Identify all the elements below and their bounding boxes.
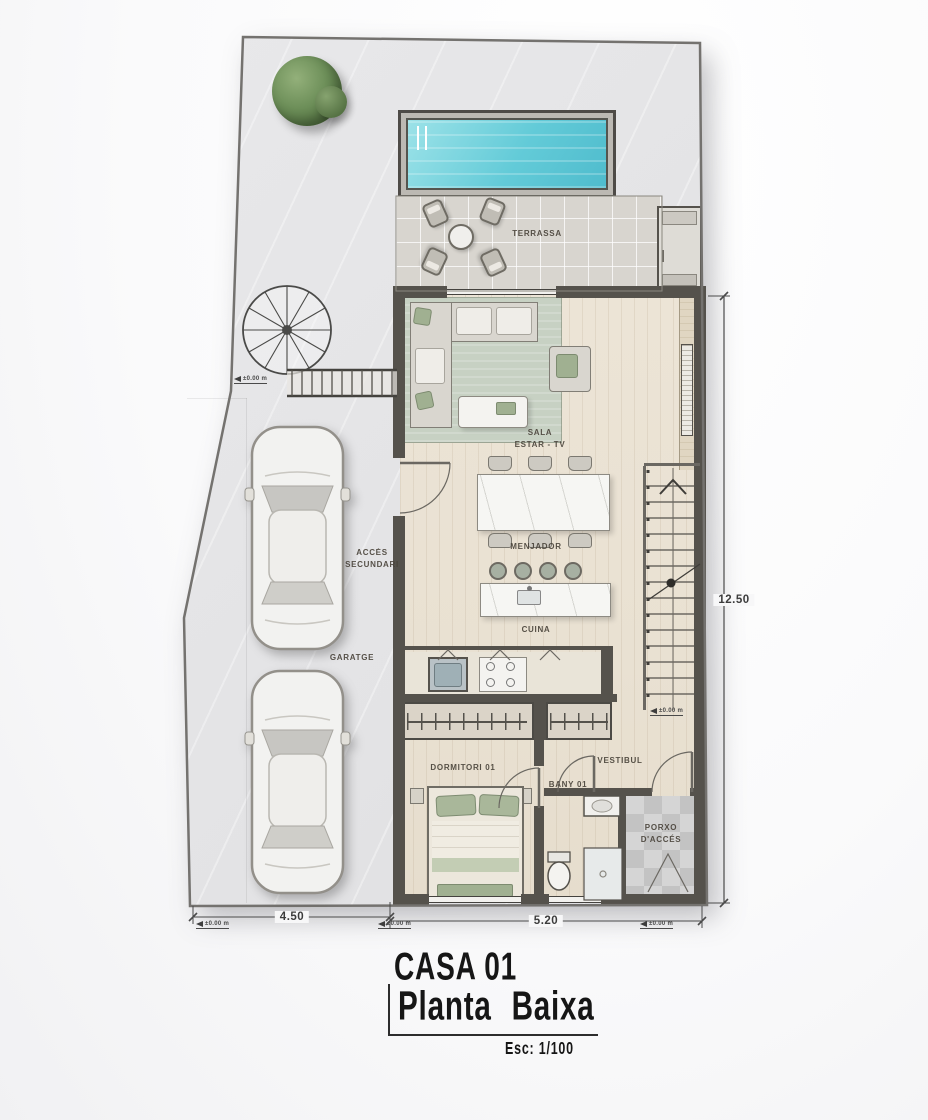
pool-water (406, 118, 608, 190)
armchair-pillow (556, 354, 578, 378)
dining-table (477, 474, 610, 531)
right-wall-shelf (681, 344, 693, 436)
title-project: CASA 01 (394, 944, 517, 989)
paving-joint (187, 398, 247, 399)
burner (506, 678, 515, 687)
sink-basin (434, 663, 462, 687)
bar-stool (564, 562, 582, 580)
room-label-porch: PORXOD'ACCÉS (641, 822, 682, 847)
coffee-table-book (496, 402, 516, 415)
cabinet-top (662, 211, 697, 225)
level-marker: ±0.00 m (650, 708, 683, 716)
counter-backline (393, 646, 613, 650)
cabinet-handle (662, 250, 664, 262)
sliding-glass-door (447, 289, 557, 295)
wall-segment (601, 894, 706, 906)
room-label-terrace: TERRASSA (512, 228, 562, 240)
dimension-bottom-left: 4.50 (275, 911, 309, 923)
stair-landing-edge (644, 463, 700, 466)
room-label-kitchen: CUINA (522, 624, 551, 636)
bar-stool (539, 562, 557, 580)
room-label-dining: MENJADOR (510, 541, 561, 553)
sofa-cushion (456, 307, 492, 335)
dimension-right: 12.50 (713, 594, 754, 606)
wall-segment (601, 646, 613, 702)
wall-segment (618, 788, 652, 796)
dining-chair (528, 456, 552, 471)
coffee-table (458, 396, 528, 428)
bar-stool (514, 562, 532, 580)
wall-segment (534, 702, 546, 740)
bed-pillow (435, 794, 476, 817)
level-arrow-icon (196, 921, 203, 927)
level-marker: ±0.00 m (378, 921, 411, 929)
wardrobe (400, 702, 534, 740)
wall-segment (393, 286, 405, 458)
bed (427, 786, 524, 898)
title-scale: Esc: 1/100 (505, 1040, 574, 1059)
room-label-hall: VESTIBUL (597, 755, 642, 767)
floor-plan: TERRASSA SALAESTAR - TV MENJADOR CUINA A… (0, 0, 928, 1120)
room-label-bathroom: BANY 01 (549, 779, 588, 791)
burner (486, 662, 495, 671)
sofa-pillow (413, 307, 432, 326)
kitchen-island (480, 583, 611, 617)
burner (486, 678, 495, 687)
wall-segment (534, 740, 544, 766)
wall-segment (694, 286, 706, 906)
room-label-garage: GARATGE (330, 652, 374, 664)
dining-chair (568, 533, 592, 548)
burner (506, 662, 515, 671)
window (549, 896, 601, 903)
title-rule-horizontal (388, 1034, 598, 1036)
level-arrow-icon (650, 708, 657, 714)
sofa-cushion (415, 348, 445, 384)
wall-segment (393, 694, 617, 702)
title-rule-vertical (388, 984, 390, 1036)
sofa-pillow (414, 390, 434, 410)
level-marker: ±0.00 m (640, 921, 673, 929)
room-label-bedroom: DORMITORI 01 (430, 762, 495, 774)
wall-segment (393, 894, 429, 906)
wall-segment (690, 788, 706, 796)
window (429, 896, 521, 903)
dining-chair (488, 456, 512, 471)
paving-joint (246, 398, 247, 903)
nightstand (410, 788, 424, 804)
wall-segment (534, 806, 544, 906)
room-label-living: SALAESTAR - TV (515, 427, 566, 452)
island-sink (517, 590, 541, 605)
dimension-bottom-right: 5.20 (529, 915, 563, 927)
level-arrow-icon (378, 921, 385, 927)
wall-segment (556, 286, 706, 298)
hall-closet (546, 702, 612, 740)
sofa-cushion (496, 307, 532, 335)
dining-chair (488, 533, 512, 548)
pool (398, 110, 616, 198)
dining-chair (568, 456, 592, 471)
terrace-cabinet (657, 206, 702, 291)
stair-edge (643, 466, 646, 710)
terrace-table (448, 224, 474, 250)
level-arrow-icon (640, 921, 647, 927)
wall-segment (393, 516, 405, 906)
bed-throw (432, 858, 519, 872)
level-arrow-icon (234, 376, 241, 382)
tree-branch (315, 86, 347, 118)
title-drawing: Planta Baixa (398, 984, 595, 1030)
cabinet-base (662, 274, 697, 286)
wall-segment (618, 788, 626, 906)
bed-pillow (478, 794, 519, 817)
bar-stool (489, 562, 507, 580)
cooktop (479, 657, 527, 692)
room-label-secondary-access: ACCÉSSECUNDARI (345, 547, 399, 572)
level-marker: ±0.00 m (234, 376, 267, 384)
kitchen-sink (428, 657, 468, 692)
island-faucet (527, 586, 532, 591)
level-marker: ±0.00 m (196, 921, 229, 929)
